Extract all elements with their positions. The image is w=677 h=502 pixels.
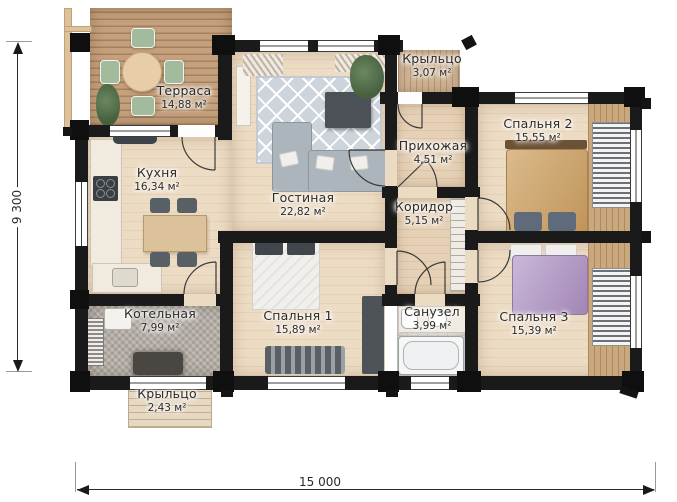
room-label-terrace: Терраса 14,88 м² xyxy=(157,84,212,111)
dimension-width-label: 15 000 xyxy=(296,475,344,489)
room-label-boiler: Котельная 7,99 м² xyxy=(124,307,196,334)
room-label-porch-top: Крыльцо 3,07 м² xyxy=(402,52,462,79)
floor-plan: Терраса 14,88 м² Кухня 16,34 м² Гостиная… xyxy=(0,0,677,502)
room-label-bedroom-1: Спальня 1 15,89 м² xyxy=(263,309,332,336)
room-label-kitchen: Кухня 16,34 м² xyxy=(134,166,180,193)
dimension-depth-label: 9 300 xyxy=(10,187,24,227)
room-label-bedroom-2: Спальня 2 15,55 м² xyxy=(503,117,572,144)
room-label-living: Гостиная 22,82 м² xyxy=(272,191,335,218)
room-label-porch-bottom: Крыльцо 2,43 м² xyxy=(137,387,197,414)
room-label-corridor: Коридор 5,15 м² xyxy=(395,200,453,227)
door-swing-arcs xyxy=(0,0,677,502)
room-label-hallway: Прихожая 4,51 м² xyxy=(399,139,468,166)
room-label-bathroom: Санузел 3,99 м² xyxy=(404,305,460,332)
room-label-bedroom-3: Спальня 3 15,39 м² xyxy=(499,310,568,337)
